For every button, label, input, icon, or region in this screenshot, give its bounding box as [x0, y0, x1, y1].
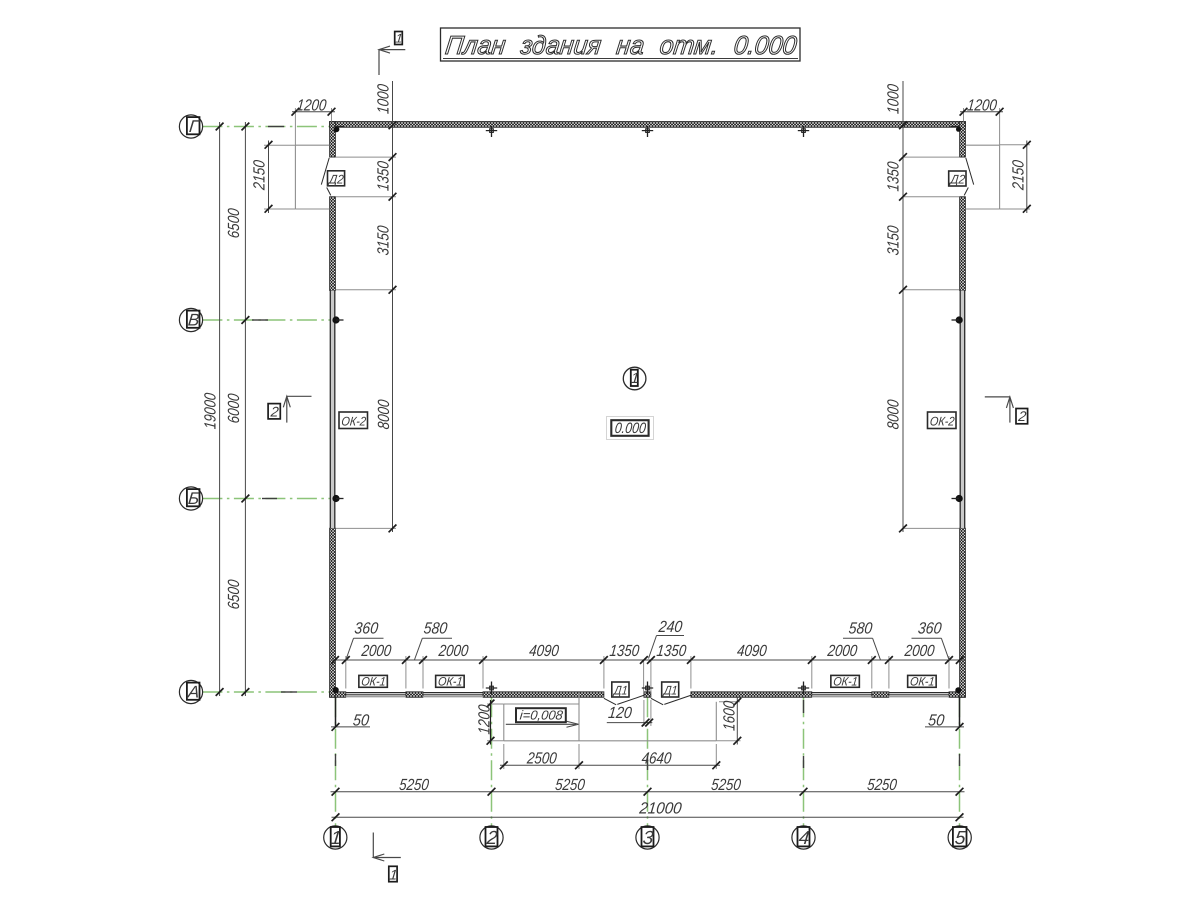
svg-text:50: 50 — [927, 712, 945, 730]
svg-text:360: 360 — [917, 620, 942, 638]
svg-text:1600: 1600 — [721, 700, 739, 731]
svg-text:В: В — [187, 310, 200, 329]
svg-text:А: А — [186, 682, 200, 701]
svg-text:ОК-1: ОК-1 — [833, 674, 859, 688]
svg-text:2150: 2150 — [251, 159, 269, 191]
svg-text:План здания на отм. 0.000: План здания на отм. 0.000 — [444, 30, 799, 60]
svg-text:240: 240 — [657, 618, 683, 636]
svg-text:6500: 6500 — [225, 208, 243, 239]
svg-text:5250: 5250 — [866, 776, 897, 794]
svg-text:0.000: 0.000 — [614, 420, 647, 437]
svg-text:1350: 1350 — [885, 161, 903, 192]
svg-text:2150: 2150 — [1010, 159, 1028, 191]
svg-text:580: 580 — [423, 620, 448, 638]
svg-text:120: 120 — [607, 704, 632, 722]
svg-text:4640: 4640 — [641, 750, 672, 768]
svg-text:4090: 4090 — [528, 642, 559, 660]
svg-text:1200: 1200 — [296, 96, 327, 114]
svg-text:2000: 2000 — [360, 642, 392, 660]
svg-text:1: 1 — [630, 370, 640, 387]
svg-text:ОК-2: ОК-2 — [341, 415, 367, 429]
svg-text:5250: 5250 — [554, 776, 585, 794]
svg-text:2000: 2000 — [903, 642, 935, 660]
svg-text:2000: 2000 — [826, 642, 858, 660]
svg-text:2500: 2500 — [525, 750, 557, 768]
svg-text:Д2: Д2 — [327, 172, 345, 186]
svg-text:4: 4 — [798, 828, 811, 849]
svg-text:6500: 6500 — [225, 579, 243, 610]
svg-text:1: 1 — [395, 32, 403, 46]
svg-text:5250: 5250 — [710, 776, 741, 794]
svg-text:ОК-1: ОК-1 — [361, 674, 387, 688]
svg-text:1: 1 — [329, 828, 342, 849]
svg-text:Б: Б — [187, 489, 200, 508]
svg-text:8000: 8000 — [375, 399, 393, 430]
svg-text:i=0,008: i=0,008 — [519, 708, 564, 723]
svg-text:50: 50 — [352, 712, 370, 730]
svg-text:580: 580 — [848, 620, 873, 638]
svg-text:1350: 1350 — [656, 642, 687, 660]
svg-text:ОК-1: ОК-1 — [909, 674, 935, 688]
svg-text:3150: 3150 — [375, 225, 393, 256]
svg-text:5250: 5250 — [398, 776, 429, 794]
svg-text:8000: 8000 — [885, 399, 903, 430]
svg-text:1200: 1200 — [475, 704, 493, 735]
svg-text:Д1: Д1 — [612, 683, 629, 697]
svg-text:Д1: Д1 — [661, 683, 678, 697]
svg-text:ОК-1: ОК-1 — [437, 674, 463, 688]
svg-text:1350: 1350 — [375, 160, 393, 191]
svg-text:2000: 2000 — [437, 642, 469, 660]
svg-text:21000: 21000 — [638, 799, 683, 817]
svg-text:4090: 4090 — [736, 642, 767, 660]
svg-text:1000: 1000 — [885, 83, 903, 114]
svg-text:Д2: Д2 — [948, 172, 966, 186]
svg-text:360: 360 — [354, 620, 379, 638]
svg-text:19000: 19000 — [202, 392, 220, 430]
svg-text:1350: 1350 — [609, 642, 640, 660]
svg-text:1000: 1000 — [375, 83, 393, 114]
svg-text:6000: 6000 — [225, 393, 243, 424]
svg-text:ОК-2: ОК-2 — [929, 415, 955, 429]
svg-text:1200: 1200 — [966, 96, 997, 114]
svg-text:3150: 3150 — [885, 225, 903, 256]
